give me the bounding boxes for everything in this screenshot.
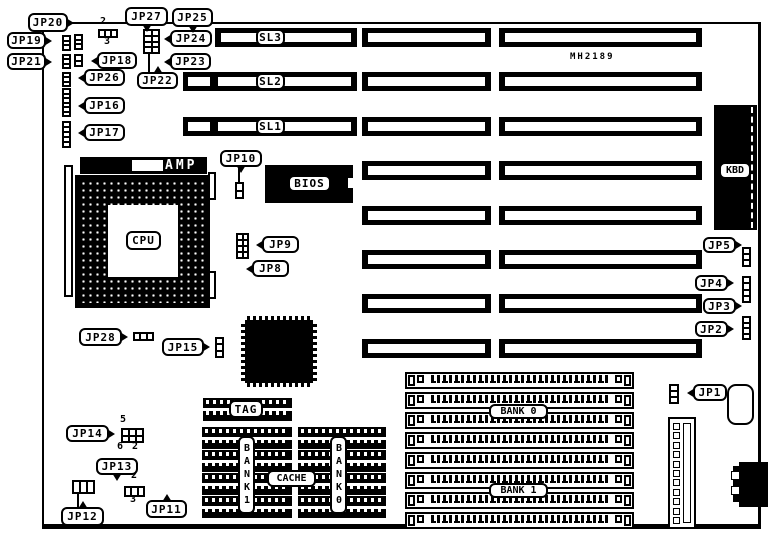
jumper-pin bbox=[123, 437, 128, 442]
jumper-pin bbox=[64, 123, 69, 126]
jumper-label-jp18: JP18 bbox=[97, 52, 137, 69]
jumper-jp4 bbox=[742, 276, 751, 303]
header-pin bbox=[673, 451, 680, 458]
simm-comb bbox=[431, 455, 608, 463]
slot-stripe bbox=[505, 255, 696, 264]
simm-latr bbox=[615, 495, 622, 503]
jumper-pin bbox=[744, 324, 749, 328]
simm-endr bbox=[624, 435, 631, 446]
jumper-jp17 bbox=[62, 121, 71, 148]
jumper-pin bbox=[74, 482, 79, 492]
jumper-pin bbox=[244, 253, 248, 257]
jumper-label-jp9: JP9 bbox=[262, 236, 299, 253]
jumper-jp16 bbox=[62, 88, 71, 117]
jumper-pin bbox=[744, 249, 749, 253]
jumper-pin bbox=[744, 318, 749, 322]
cpu-side-bar-right-bottom bbox=[208, 271, 216, 299]
jumper-pin bbox=[744, 278, 749, 282]
jumper-pin bbox=[744, 291, 749, 295]
jumper-pin bbox=[671, 386, 677, 390]
simm-latl bbox=[417, 455, 424, 463]
jumper-label-jp21: JP21 bbox=[7, 53, 46, 70]
jumper-jp28 bbox=[133, 332, 154, 341]
simm-latl bbox=[417, 435, 424, 443]
jumper-pin bbox=[244, 235, 248, 239]
jumper-pin bbox=[112, 31, 116, 36]
pin-number-jp27: 3 bbox=[104, 37, 110, 47]
simm-endl bbox=[408, 515, 415, 526]
simm-latl bbox=[417, 515, 424, 523]
pin-number-jp14: 5 bbox=[120, 415, 126, 425]
slot-row5-mid bbox=[362, 250, 491, 269]
simm-endl bbox=[408, 375, 415, 386]
jumper-label-jp27: JP27 bbox=[125, 7, 168, 26]
slot-row7-mid bbox=[362, 339, 491, 358]
jumper-pin bbox=[88, 482, 93, 492]
part-number: MH2189 bbox=[570, 53, 615, 62]
jumper-pin bbox=[81, 482, 86, 492]
tag-label: TAG bbox=[229, 400, 263, 418]
jumper-label-jp16: JP16 bbox=[84, 97, 125, 114]
jumper-label-jp22: JP22 bbox=[137, 72, 178, 89]
jumper-pin bbox=[238, 241, 242, 245]
simm-bank0-label: BANK 0 bbox=[489, 404, 548, 419]
jumper-pin bbox=[153, 48, 159, 52]
slot-row6-right bbox=[499, 294, 702, 313]
jumper-pin bbox=[139, 488, 143, 495]
jumper-pin bbox=[141, 334, 145, 339]
power-connector-outline bbox=[727, 384, 754, 425]
jumper-pin bbox=[64, 74, 69, 76]
jumper-pin bbox=[145, 37, 151, 41]
din-pin-top bbox=[731, 471, 740, 480]
cpu-label: CPU bbox=[126, 231, 161, 250]
jumper-pin bbox=[64, 83, 69, 85]
jumper-label-jp2: JP2 bbox=[695, 321, 728, 337]
simm-comb bbox=[431, 395, 608, 403]
header-pin bbox=[673, 479, 680, 486]
pin-number-jp27: 2 bbox=[100, 17, 106, 27]
jumper-pin bbox=[64, 56, 69, 58]
cpu-side-bar-right-top bbox=[208, 172, 216, 200]
jumper-pin bbox=[238, 247, 242, 251]
slot-stripe bbox=[368, 299, 485, 308]
amp-window bbox=[132, 160, 163, 171]
slot-stripe bbox=[505, 122, 696, 131]
jumper-pin bbox=[64, 138, 69, 141]
slot-label-sl1: SL1 bbox=[256, 118, 285, 135]
jumper-pin bbox=[145, 43, 151, 47]
jumper-pin bbox=[148, 334, 152, 339]
slot-row1-right bbox=[499, 72, 702, 91]
pin-number-jp14: 6 bbox=[117, 442, 123, 452]
jumper-pin bbox=[64, 60, 69, 62]
jumper-pin bbox=[744, 284, 749, 288]
chipset-qfp-chip bbox=[241, 316, 317, 387]
din-pin-bottom bbox=[731, 486, 740, 495]
jumper-label-jp4: JP4 bbox=[695, 275, 728, 291]
simm-endr bbox=[624, 475, 631, 486]
amp-label: AMP bbox=[165, 159, 197, 172]
simm-latl bbox=[417, 415, 424, 423]
slot-stripe bbox=[505, 211, 696, 220]
jumper-pin bbox=[64, 37, 69, 40]
jumper-jp13 bbox=[72, 480, 95, 494]
header-pin bbox=[673, 470, 680, 477]
simm-latl bbox=[417, 395, 424, 403]
header-pin bbox=[673, 423, 680, 430]
slot-stripe bbox=[368, 344, 485, 353]
jumper-label-jp1: JP1 bbox=[693, 384, 727, 401]
jumper-pin bbox=[217, 345, 222, 349]
simm-socket-0 bbox=[405, 372, 634, 389]
jumper-pin bbox=[744, 261, 749, 265]
jumper-jp18 bbox=[74, 54, 83, 67]
simm-latl bbox=[417, 475, 424, 483]
din-connector bbox=[739, 462, 768, 507]
jumper-pin bbox=[671, 398, 677, 402]
jumper-label-jp14: JP14 bbox=[66, 425, 109, 442]
slot-stripe bbox=[188, 122, 210, 131]
jumper-jp1 bbox=[669, 384, 679, 404]
jumper-label-jp26: JP26 bbox=[84, 69, 125, 86]
cache-bank0-label: BANK0 bbox=[330, 436, 347, 514]
slot-stripe bbox=[368, 77, 485, 86]
slot-stripe bbox=[505, 166, 696, 175]
slot-row4-right bbox=[499, 206, 702, 225]
jumper-pin bbox=[76, 41, 81, 44]
jumper-pin bbox=[153, 31, 159, 35]
simm-endl bbox=[408, 395, 415, 406]
jumper-jp10 bbox=[235, 182, 244, 199]
slot-row6-mid bbox=[362, 294, 491, 313]
slot-stripe bbox=[505, 344, 696, 353]
jumper-jp5 bbox=[742, 247, 751, 267]
slot-stripe bbox=[505, 33, 696, 42]
slot-label-sl2: SL2 bbox=[256, 73, 285, 90]
slot-stripe bbox=[221, 33, 351, 42]
jumper-pin bbox=[130, 430, 135, 435]
simm-latl bbox=[417, 375, 424, 383]
simm-endr bbox=[624, 455, 631, 466]
simm-latr bbox=[615, 435, 622, 443]
jumper-label-jp11: JP11 bbox=[146, 500, 187, 518]
slot-row2-mid bbox=[362, 117, 491, 136]
jumper-jp2 bbox=[742, 316, 751, 340]
pin-number-jp14: 2 bbox=[132, 442, 138, 452]
simm-endr bbox=[624, 515, 631, 526]
cache-label: CACHE bbox=[267, 470, 316, 487]
slot-stripe bbox=[368, 255, 485, 264]
jumper-pin bbox=[64, 99, 69, 102]
jumper-label-jp13: JP13 bbox=[96, 458, 138, 475]
header-pin bbox=[673, 517, 680, 524]
simm-bank1-label: BANK 1 bbox=[489, 483, 548, 498]
jumper-pin bbox=[76, 62, 81, 66]
jumper-jp24 bbox=[143, 29, 160, 54]
jumper-pin bbox=[744, 255, 749, 259]
jumper-jp15 bbox=[215, 337, 224, 358]
jumper-pin bbox=[64, 133, 69, 136]
jumper-pin bbox=[64, 90, 69, 93]
jumper-pin bbox=[64, 113, 69, 116]
jumper-pin bbox=[64, 104, 69, 107]
jumper-jp9 bbox=[236, 233, 249, 259]
simm-endl bbox=[408, 415, 415, 426]
bios-chip-notch bbox=[348, 178, 353, 188]
jumper-label-jp20: JP20 bbox=[28, 13, 68, 32]
cpu-side-bar-left bbox=[64, 165, 73, 297]
slot-row3-right bbox=[499, 161, 702, 180]
jumper-pin bbox=[64, 78, 69, 80]
simm-latl bbox=[417, 495, 424, 503]
jumper-pin bbox=[76, 45, 81, 48]
header-pin bbox=[673, 489, 680, 496]
header-pin bbox=[673, 432, 680, 439]
slot-row3-mid bbox=[362, 161, 491, 180]
simm-latr bbox=[615, 395, 622, 403]
jumper-pin bbox=[64, 42, 69, 45]
simm-latr bbox=[615, 375, 622, 383]
slot-stripe bbox=[368, 166, 485, 175]
header-pin bbox=[673, 442, 680, 449]
jumper-pin bbox=[64, 46, 69, 49]
jumper-label-jp28: JP28 bbox=[79, 328, 122, 346]
simm-socket-3 bbox=[405, 432, 634, 449]
slot-row2-right bbox=[499, 117, 702, 136]
jumper-pin bbox=[237, 184, 242, 190]
slot-label-sl3: SL3 bbox=[256, 29, 285, 46]
leader-line-jp22 bbox=[148, 53, 150, 72]
simm-endr bbox=[624, 415, 631, 426]
simm-endl bbox=[408, 495, 415, 506]
slot-row4-mid bbox=[362, 206, 491, 225]
jumper-label-jp25: JP25 bbox=[172, 8, 213, 27]
jumper-pin bbox=[76, 56, 81, 60]
header-pin bbox=[673, 508, 680, 515]
kbd-label: KBD bbox=[719, 162, 751, 179]
jumper-pin bbox=[244, 247, 248, 251]
jumper-jp19 bbox=[62, 35, 71, 51]
jumper-label-jp15: JP15 bbox=[162, 338, 204, 356]
jumper-jp26 bbox=[62, 72, 71, 87]
jumper-jp21 bbox=[62, 54, 71, 69]
jumper-pin bbox=[744, 335, 749, 339]
slot-stripe bbox=[505, 77, 696, 86]
motherboard-diagram: SL3SL2SL1MH2189JP1JP2JP3JP4JP5JP8JP9JP10… bbox=[0, 0, 773, 543]
jumper-pin bbox=[64, 65, 69, 67]
jumper-pin bbox=[64, 128, 69, 131]
simm-endl bbox=[408, 435, 415, 446]
jumper-jp20 bbox=[74, 34, 83, 50]
jumper-pin bbox=[153, 37, 159, 41]
simm-endl bbox=[408, 475, 415, 486]
jumper-pin bbox=[64, 143, 69, 146]
simm-endr bbox=[624, 375, 631, 386]
slot-stripe bbox=[368, 33, 485, 42]
pin-header-connector bbox=[668, 417, 696, 529]
simm-comb bbox=[431, 515, 608, 523]
jumper-label-jp12: JP12 bbox=[61, 507, 104, 526]
jumper-pin bbox=[238, 253, 242, 257]
jumper-pin bbox=[744, 329, 749, 333]
jumper-pin bbox=[64, 108, 69, 111]
bios-label: BIOS bbox=[288, 175, 331, 192]
simm-comb bbox=[431, 475, 608, 483]
slot-stripe bbox=[505, 299, 696, 308]
jumper-label-jp8: JP8 bbox=[252, 260, 289, 277]
slot-row1-mid bbox=[362, 72, 491, 91]
simm-latr bbox=[615, 515, 622, 523]
jumper-label-jp3: JP3 bbox=[703, 298, 736, 314]
simm-latr bbox=[615, 415, 622, 423]
simm-endr bbox=[624, 495, 631, 506]
jumper-pin bbox=[145, 48, 151, 52]
jumper-pin bbox=[238, 235, 242, 239]
jumper-label-jp17: JP17 bbox=[84, 124, 125, 141]
slot-row0-right bbox=[499, 28, 702, 47]
simm-socket-4 bbox=[405, 452, 634, 469]
jumper-pin bbox=[671, 392, 677, 396]
jumper-pin bbox=[123, 430, 128, 435]
simm-comb bbox=[431, 375, 608, 383]
jumper-pin bbox=[135, 334, 139, 339]
header-pin bbox=[673, 498, 680, 505]
jumper-pin bbox=[64, 95, 69, 98]
simm-comb bbox=[431, 435, 608, 443]
simm-latr bbox=[615, 455, 622, 463]
simm-latr bbox=[615, 475, 622, 483]
jumper-pin bbox=[744, 297, 749, 301]
simm-endr bbox=[624, 395, 631, 406]
slot-stripe bbox=[368, 122, 485, 131]
jumper-label-jp5: JP5 bbox=[703, 237, 736, 253]
jumper-pin bbox=[153, 43, 159, 47]
slot-stripe bbox=[188, 77, 210, 86]
jumper-pin bbox=[137, 430, 142, 435]
jumper-label-jp23: JP23 bbox=[170, 53, 211, 70]
simm-endl bbox=[408, 455, 415, 466]
pin-number-jp11: 3 bbox=[130, 495, 136, 505]
slot-row5-right bbox=[499, 250, 702, 269]
jumper-pin bbox=[76, 36, 81, 39]
cache-bank1-label: BANK1 bbox=[238, 436, 255, 514]
jumper-pin bbox=[237, 192, 242, 198]
jumper-pin bbox=[217, 352, 222, 356]
header-pin bbox=[673, 461, 680, 468]
slot-row0-left bbox=[215, 28, 357, 47]
slot-stripe bbox=[368, 211, 485, 220]
slot-row7-right bbox=[499, 339, 702, 358]
slot-row0-mid bbox=[362, 28, 491, 47]
simm-socket-7 bbox=[405, 512, 634, 529]
jumper-label-jp19: JP19 bbox=[7, 32, 46, 49]
jumper-pin bbox=[244, 241, 248, 245]
jumper-label-jp10: JP10 bbox=[220, 150, 262, 167]
jumper-pin bbox=[217, 339, 222, 343]
